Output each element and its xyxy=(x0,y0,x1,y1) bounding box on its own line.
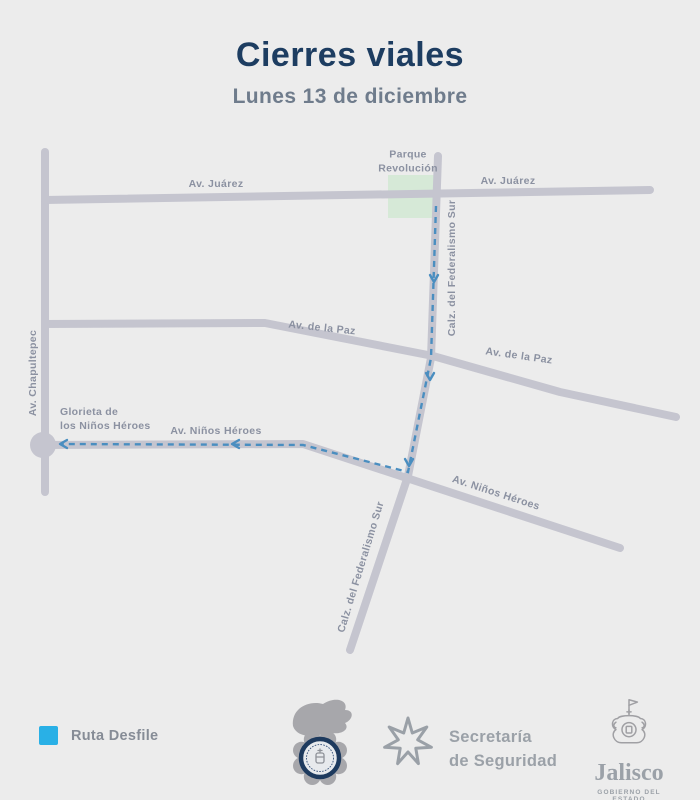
street-label-av-ninos-heroes-west: Av. Niños Héroes xyxy=(170,425,261,437)
legend-label: Ruta Desfile xyxy=(71,728,158,744)
secretaria-line1: Secretaría xyxy=(449,726,557,750)
cierres-viales-infographic: Cierres viales Lunes 13 de diciembre Av.… xyxy=(0,0,700,800)
street-label-federalismo-upper: Calz. del Federalismo Sur xyxy=(446,200,458,337)
parque-label-line1: Parque xyxy=(378,148,438,162)
page-title: Cierres viales xyxy=(0,36,700,75)
street-label-av-juarez-left: Av. Juárez xyxy=(189,178,244,190)
jalisco-wordmark: Jalisco xyxy=(586,760,672,787)
street-label-av-juarez-right: Av. Juárez xyxy=(481,175,536,187)
glorieta-label-line2: los Niños Héroes xyxy=(60,420,151,434)
parque-label-line2: Revolución xyxy=(378,162,438,176)
ruta-desfile-swatch-icon xyxy=(39,726,58,745)
glorieta-label-line1: Glorieta de xyxy=(60,406,151,420)
parque-revolucion-label: Parque Revolución xyxy=(378,148,438,175)
legend: Ruta Desfile xyxy=(39,726,158,745)
street-label-federalismo-lower: Calz. del Federalismo Sur xyxy=(335,500,386,634)
street-label-av-de-la-paz-left: Av. de la Paz xyxy=(288,319,356,338)
street-label-av-ninos-heroes-southeast: Av. Niños Héroes xyxy=(451,473,542,513)
gobierno-del-estado-label: GOBIERNO DEL ESTADO xyxy=(586,789,672,800)
comisaria-police-badge-icon xyxy=(287,696,357,791)
street-label-av-de-la-paz-right: Av. de la Paz xyxy=(485,345,554,366)
secretaria-line2: de Seguridad xyxy=(449,750,557,774)
header: Cierres viales Lunes 13 de diciembre xyxy=(0,0,700,109)
map-labels: Av. Juárez Av. Juárez Parque Revolución … xyxy=(0,0,700,800)
glorieta-label: Glorieta de los Niños Héroes xyxy=(60,406,151,433)
secretaria-wordmark: Secretaría de Seguridad xyxy=(449,726,557,774)
page-subtitle: Lunes 13 de diciembre xyxy=(0,85,700,109)
jalisco-crest-icon xyxy=(601,696,657,754)
jalisco-logo: Jalisco GOBIERNO DEL ESTADO xyxy=(586,696,672,800)
street-label-av-chapultepec: Av. Chapultepec xyxy=(27,330,39,416)
secretaria-star-icon xyxy=(383,716,433,768)
